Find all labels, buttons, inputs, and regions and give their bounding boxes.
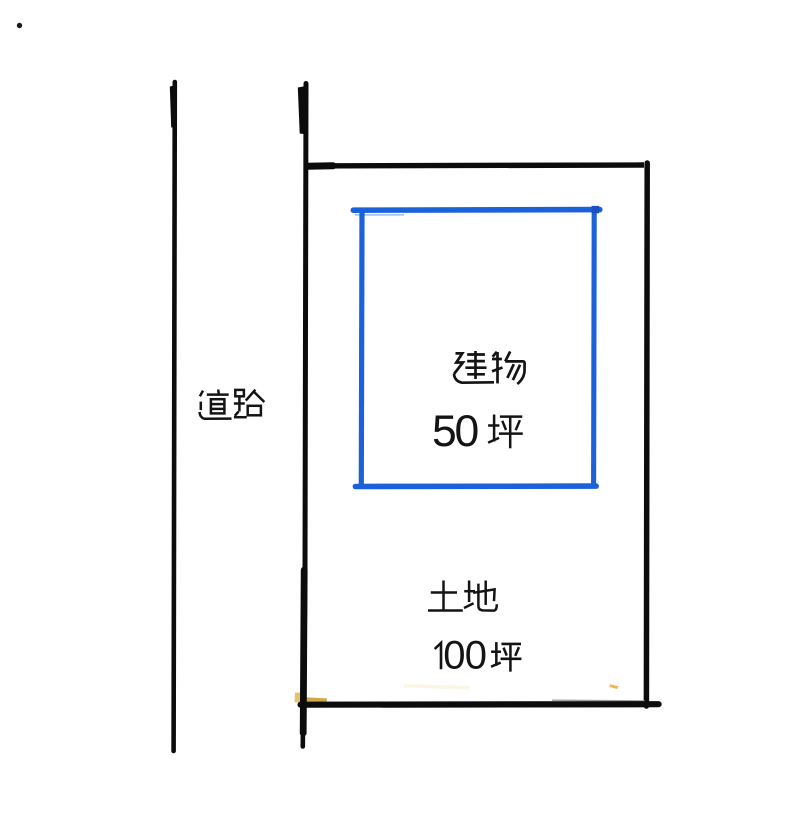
svg-text:0: 0 [455, 407, 480, 456]
svg-text:0: 0 [443, 634, 465, 678]
svg-text:5: 5 [432, 407, 457, 456]
svg-text:0: 0 [465, 634, 487, 678]
